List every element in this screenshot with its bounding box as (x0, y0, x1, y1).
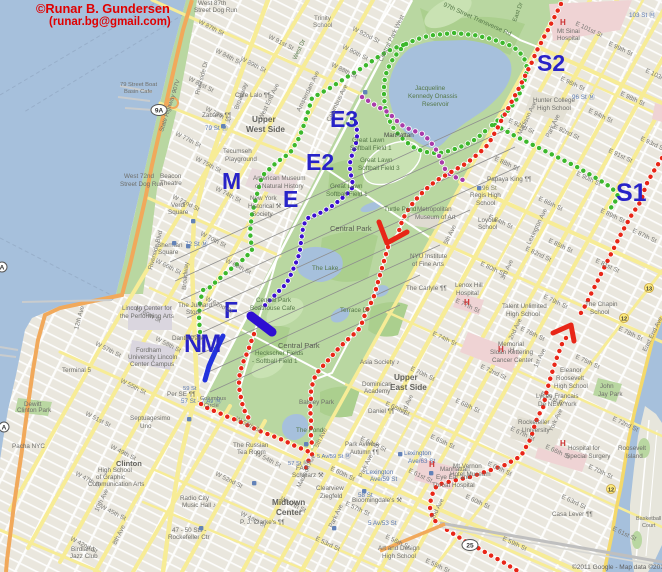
svg-text:S1: S1 (616, 179, 647, 207)
svg-text:Ave/59 St: Ave/59 St (370, 476, 397, 483)
svg-text:Mt Sinai: Mt Sinai (557, 28, 580, 35)
svg-text:Softball Field 1: Softball Field 1 (326, 191, 368, 198)
svg-text:School: School (476, 200, 495, 207)
svg-text:of Natural History: of Natural History (255, 183, 304, 190)
svg-text:59 St: 59 St (183, 386, 197, 392)
svg-text:Museum of Art: Museum of Art (415, 214, 456, 221)
svg-text:5 Av/53 St: 5 Av/53 St (368, 520, 397, 527)
svg-text:Communication Arts: Communication Arts (88, 481, 144, 488)
svg-text:High School: High School (537, 105, 571, 112)
svg-text:Lexington: Lexington (366, 469, 394, 476)
svg-text:of Graphic: of Graphic (96, 474, 125, 481)
svg-text:©2011 Google - Map data ©2011: ©2011 Google - Map data ©2011 Goog (572, 563, 662, 571)
svg-text:Softball Field 3: Softball Field 3 (358, 165, 400, 172)
svg-text:Fordham: Fordham (136, 347, 161, 354)
svg-text:Reservoir: Reservoir (422, 101, 449, 108)
svg-text:Loyola: Loyola (478, 217, 497, 224)
svg-text:Papaya King ¶¶: Papaya King ¶¶ (487, 176, 532, 183)
svg-text:School: School (590, 309, 609, 316)
svg-text:The Juilliard: The Juilliard (178, 302, 212, 309)
svg-text:Hotel Museum: Hotel Museum (450, 471, 491, 478)
svg-text:Softball Field 1: Softball Field 1 (350, 145, 392, 152)
svg-text:Casa Lever ¶¶: Casa Lever ¶¶ (552, 511, 593, 518)
svg-text:Cancer Center: Cancer Center (492, 357, 533, 364)
svg-text:NYU Institute: NYU Institute (410, 253, 448, 260)
svg-text:79 Street Boat: 79 Street Boat (120, 82, 157, 88)
svg-text:West 72nd: West 72nd (124, 173, 154, 180)
svg-text:Balsley Park: Balsley Park (299, 399, 335, 406)
svg-text:Central Park: Central Park (278, 341, 320, 350)
svg-text:H: H (498, 345, 504, 354)
svg-text:School: School (478, 224, 497, 231)
svg-text:Birdland: Birdland (71, 546, 95, 553)
svg-text:John: John (600, 383, 614, 390)
svg-text:Eleanor: Eleanor (560, 367, 582, 374)
svg-text:Lincoln Center for: Lincoln Center for (122, 305, 172, 312)
svg-text:Music Hall ♪: Music Hall ♪ (182, 502, 216, 509)
svg-text:Jay Park: Jay Park (598, 391, 623, 398)
svg-text:Terrace Dr: Terrace Dr (340, 307, 369, 314)
svg-text:Park Avenue: Park Avenue (345, 442, 380, 448)
svg-text:Clinton Park: Clinton Park (17, 407, 52, 414)
svg-text:Hospital for: Hospital for (568, 445, 600, 452)
svg-text:9A: 9A (155, 108, 164, 115)
svg-text:Society: Society (252, 211, 274, 218)
svg-text:Hospital: Hospital (557, 35, 580, 42)
svg-text:Cafe Lalo ¶¶: Cafe Lalo ¶¶ (235, 92, 271, 99)
svg-text:Basin Cafe: Basin Cafe (124, 89, 152, 95)
svg-text:H: H (510, 347, 515, 354)
svg-text:East Side: East Side (390, 383, 427, 392)
svg-text:The Lake: The Lake (312, 265, 339, 272)
svg-text:Historical ⚒: Historical ⚒ (248, 203, 282, 210)
svg-text:High School: High School (554, 383, 588, 390)
svg-text:A: A (0, 265, 5, 272)
svg-text:Metropolitan: Metropolitan (417, 206, 452, 213)
svg-text:H: H (464, 298, 470, 307)
svg-text:Street Dog Run: Street Dog Run (120, 181, 164, 188)
svg-text:American Museum: American Museum (253, 175, 306, 182)
svg-text:Island: Island (626, 453, 643, 460)
svg-text:Central Park: Central Park (256, 297, 292, 304)
svg-text:Beacon: Beacon (160, 173, 182, 180)
svg-text:Lexington: Lexington (404, 450, 432, 457)
svg-text:University: University (522, 427, 550, 434)
svg-text:Uno: Uno (140, 423, 152, 430)
svg-text:Mt Vernon: Mt Vernon (453, 463, 482, 470)
svg-text:H: H (429, 460, 435, 469)
svg-text:Jacqueline: Jacqueline (415, 85, 446, 92)
svg-text:96 St: 96 St (482, 185, 497, 192)
svg-text:Special Surgery: Special Surgery (566, 453, 611, 460)
svg-text:Basketball: Basketball (636, 516, 661, 522)
svg-text:Autumn ¶¶: Autumn ¶¶ (350, 450, 379, 456)
svg-text:Throat Hospital: Throat Hospital (432, 482, 475, 489)
svg-text:Center: Center (276, 508, 303, 517)
svg-text:The Chapin: The Chapin (585, 301, 618, 308)
svg-text:13: 13 (646, 287, 652, 293)
svg-text:Trinity: Trinity (314, 15, 332, 22)
svg-text:E2: E2 (306, 149, 334, 175)
svg-text:Square: Square (158, 249, 179, 256)
svg-text:Sherman: Sherman (157, 242, 183, 249)
svg-text:Roosevelt: Roosevelt (556, 375, 584, 382)
svg-text:Square: Square (168, 209, 189, 216)
svg-text:Pacha NYC: Pacha NYC (12, 443, 45, 450)
svg-text:103 St Ⓜ: 103 St Ⓜ (629, 11, 656, 19)
svg-text:Great Lawn: Great Lawn (330, 183, 363, 190)
svg-text:A: A (2, 425, 7, 432)
svg-text:High School: High School (506, 311, 540, 318)
svg-text:57 St Ⓜ: 57 St Ⓜ (288, 459, 309, 467)
svg-text:S2: S2 (537, 50, 565, 76)
svg-text:57 St - 7 Av Ⓜ: 57 St - 7 Av Ⓜ (181, 397, 222, 405)
svg-text:Playground: Playground (225, 156, 257, 163)
svg-text:University Lincoln: University Lincoln (128, 354, 178, 361)
svg-text:12: 12 (621, 317, 627, 323)
svg-text:Art and Design: Art and Design (378, 545, 420, 552)
svg-text:H: H (560, 439, 566, 448)
svg-text:12: 12 (608, 488, 614, 494)
svg-text:Hunter College: Hunter College (533, 97, 576, 104)
svg-text:New York: New York (250, 195, 277, 202)
svg-text:School: School (313, 22, 332, 29)
svg-text:Ziegfeld: Ziegfeld (320, 493, 343, 500)
svg-text:Turtle Pond: Turtle Pond (384, 206, 417, 213)
svg-text:©Runar B. Gundersen: ©Runar B. Gundersen (36, 1, 170, 16)
svg-text:Verdi: Verdi (171, 202, 185, 209)
svg-text:Manhattan: Manhattan (384, 132, 414, 139)
svg-text:Lenox Hill: Lenox Hill (455, 282, 483, 289)
svg-text:De NEW York: De NEW York (538, 401, 577, 408)
svg-text:Boathouse Cafe: Boathouse Cafe (250, 305, 296, 312)
svg-text:Upper: Upper (252, 115, 276, 124)
svg-text:West Side: West Side (246, 125, 285, 134)
svg-text:Court: Court (642, 523, 656, 529)
svg-text:The Carlyle ¶¶: The Carlyle ¶¶ (406, 285, 447, 292)
svg-text:Rockefeller Ctr: Rockefeller Ctr (168, 534, 210, 541)
svg-text:Clearview: Clearview (316, 485, 344, 492)
svg-text:Street Dog Run: Street Dog Run (194, 7, 238, 14)
svg-text:Upper: Upper (394, 373, 418, 382)
svg-text:H: H (560, 18, 566, 27)
svg-text:Tea Room: Tea Room (237, 449, 266, 456)
svg-text:Store: Store (186, 309, 202, 316)
svg-text:Terminal 5: Terminal 5 (62, 367, 92, 374)
svg-text:Talent Unlimited: Talent Unlimited (502, 303, 547, 310)
svg-text:West 87th: West 87th (198, 0, 227, 7)
svg-text:Zabar's ¶¶: Zabar's ¶¶ (202, 112, 232, 119)
svg-text:the Performing Arts: the Performing Arts (120, 313, 174, 320)
svg-text:High School: High School (382, 553, 416, 560)
svg-text:High School: High School (98, 467, 132, 474)
svg-text:Dominican: Dominican (362, 381, 392, 388)
svg-text:The Pond: The Pond (296, 427, 324, 434)
svg-text:Tecumseh: Tecumseh (223, 148, 252, 155)
svg-text:Roosevelt: Roosevelt (618, 445, 646, 452)
svg-text:Center Campus: Center Campus (130, 361, 174, 368)
svg-text:Great Lawn: Great Lawn (360, 157, 393, 164)
svg-text:Central Park: Central Park (330, 224, 372, 233)
svg-text:(runar.bg@gmail.com): (runar.bg@gmail.com) (49, 16, 171, 28)
svg-text:Hospital: Hospital (456, 290, 479, 297)
svg-text:Great Lawn: Great Lawn (352, 137, 385, 144)
svg-text:Rockefeller: Rockefeller (518, 419, 550, 426)
svg-text:The Russian: The Russian (233, 442, 269, 449)
svg-text:Jazz Club: Jazz Club (70, 553, 98, 560)
svg-text:Schwarz ⚒: Schwarz ⚒ (292, 472, 324, 479)
svg-text:of Fine Arts: of Fine Arts (412, 261, 444, 268)
svg-text:Per SE ¶¶: Per SE ¶¶ (167, 391, 196, 398)
svg-text:Clinton: Clinton (116, 459, 142, 468)
svg-text:96 St Ⓜ: 96 St Ⓜ (572, 93, 595, 101)
svg-text:- Softball Field 1: - Softball Field 1 (252, 358, 298, 365)
svg-text:Lycee Francais: Lycee Francais (536, 393, 578, 400)
svg-text:Regis High: Regis High (470, 192, 501, 199)
svg-text:Radio City: Radio City (180, 495, 210, 502)
svg-text:Midtown: Midtown (272, 498, 305, 507)
svg-text:Dante Park: Dante Park (172, 335, 204, 342)
svg-text:Kennedy Onassis: Kennedy Onassis (408, 93, 457, 100)
svg-text:Academy: Academy (364, 388, 391, 395)
svg-text:Asia Society ♪: Asia Society ♪ (360, 359, 400, 366)
svg-text:25: 25 (466, 543, 474, 550)
svg-text:Heckscher Fields: Heckscher Fields (255, 350, 303, 357)
svg-text:5 Av/59 St Ⓜ: 5 Av/59 St Ⓜ (317, 452, 351, 460)
svg-text:Daniel ¶¶: Daniel ¶¶ (368, 408, 395, 415)
svg-text:Septuagesimo: Septuagesimo (130, 415, 171, 422)
svg-text:P. J. Clarke's ¶¶: P. J. Clarke's ¶¶ (240, 519, 285, 526)
